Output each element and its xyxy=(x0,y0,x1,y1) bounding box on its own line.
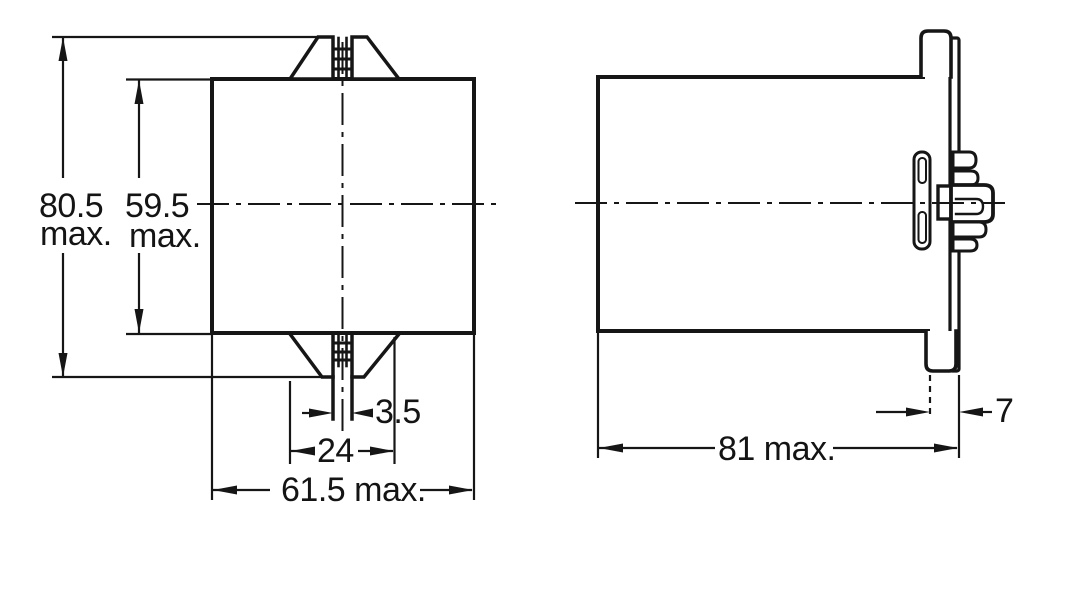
dim-latch-slot-width xyxy=(302,409,373,418)
outline-drawing: 80.5 max. 59.5 max. 3.5 24 61.5 max. 81 … xyxy=(0,0,1065,597)
dimension-labels: 80.5 max. 59.5 max. 3.5 24 61.5 max. 81 … xyxy=(39,187,1013,509)
side-view xyxy=(598,31,993,371)
label-mounting-clip-width: 24 xyxy=(317,432,354,470)
top-hook-tab xyxy=(921,31,951,77)
top-mounting-clip xyxy=(290,37,399,79)
label-overall-height-suffix: max. xyxy=(40,215,112,253)
label-overall-width: 61.5 max. xyxy=(281,471,426,509)
terminal-pins xyxy=(938,152,993,251)
release-latch-lever xyxy=(914,152,930,249)
pin-4 xyxy=(953,239,977,251)
label-latch-slot-width: 3.5 xyxy=(375,393,421,431)
bottom-hook-tab xyxy=(926,331,956,371)
label-rear-flange-depth: 7 xyxy=(995,392,1013,430)
dimension-annotations xyxy=(52,37,992,500)
label-overall-depth: 81 max. xyxy=(718,430,835,468)
pin-3 xyxy=(953,222,986,237)
pin-2 xyxy=(953,171,978,185)
label-body-height-suffix: max. xyxy=(129,217,201,255)
dim-rear-flange-depth xyxy=(876,408,992,417)
pin-1 xyxy=(953,152,976,168)
